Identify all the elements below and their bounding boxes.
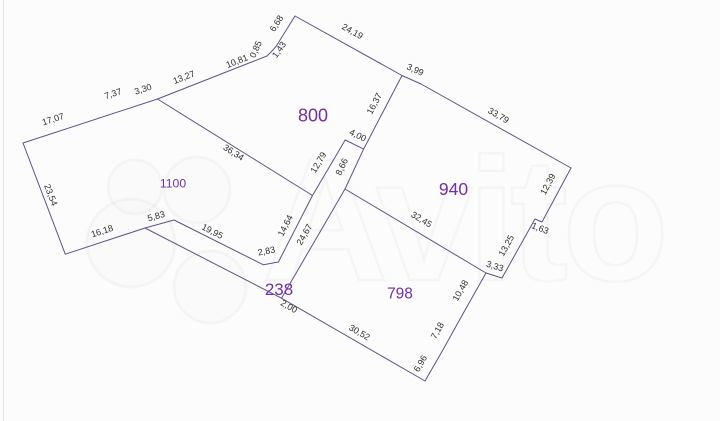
- svg-text:238: 238: [265, 280, 293, 299]
- svg-text:800: 800: [298, 106, 328, 126]
- svg-text:1100: 1100: [160, 176, 186, 190]
- svg-text:940: 940: [439, 179, 468, 199]
- svg-text:798: 798: [387, 286, 413, 303]
